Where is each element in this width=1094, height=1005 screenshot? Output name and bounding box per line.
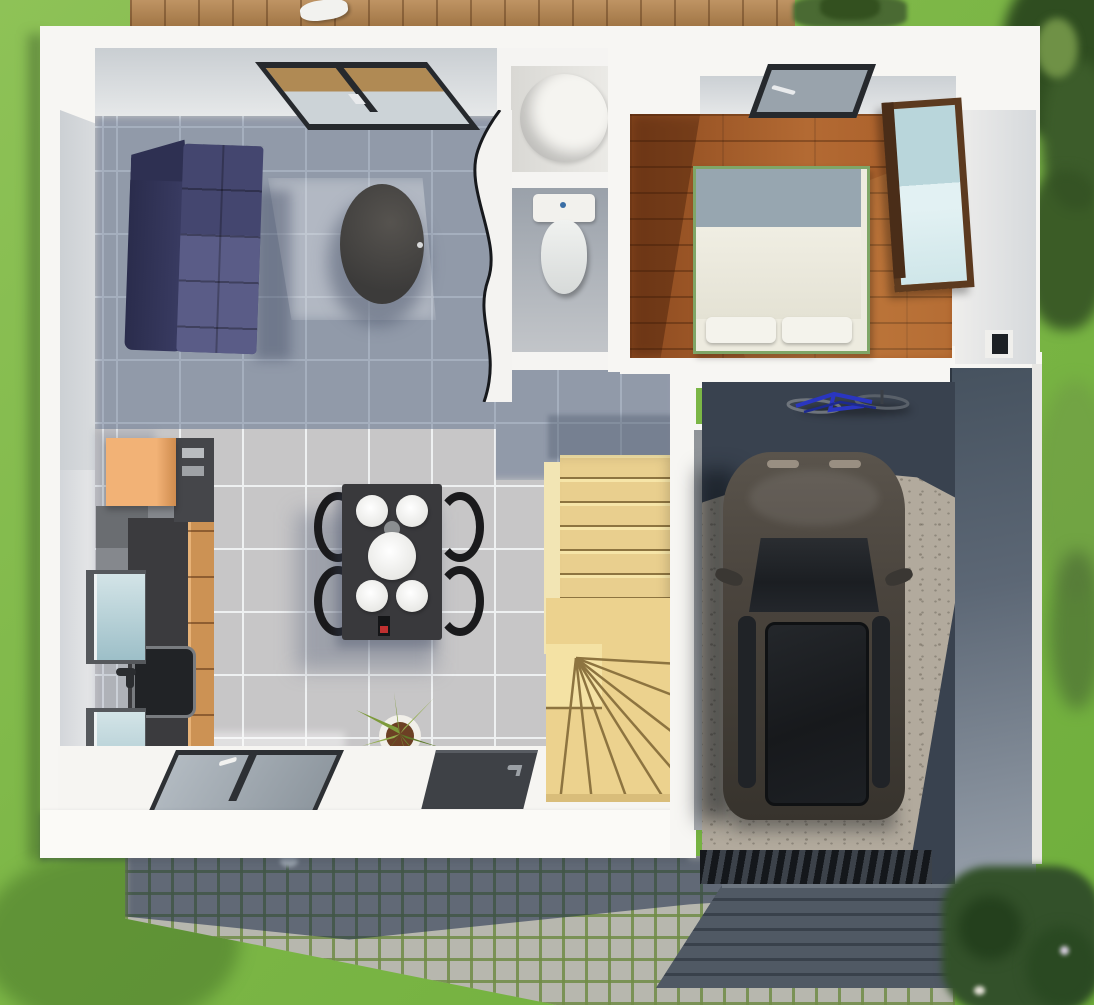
stair-top-shadow [548, 415, 678, 459]
hedge-flower [1060, 946, 1069, 955]
bushes-top-dark [820, 0, 880, 20]
toilet-button [560, 202, 566, 208]
hedge-dark-spot [958, 896, 1022, 960]
wardrobe [881, 97, 974, 292]
car-roof-trim [767, 460, 799, 468]
skylight-mullion [336, 68, 378, 112]
plate [356, 495, 388, 527]
wood-deck [130, 0, 795, 27]
garage-right-wall [950, 368, 1036, 886]
tree-highlight [1036, 18, 1078, 78]
bed-pillow [782, 317, 852, 343]
garage-right-outer-lip [1032, 364, 1042, 864]
bed-duvet [696, 227, 861, 319]
car-roof-trim [829, 460, 861, 468]
plate [396, 495, 428, 527]
car-windshield [749, 538, 879, 612]
bed-head-sheet [696, 169, 861, 227]
bedroom-skylight [748, 64, 876, 118]
dining-chair [436, 566, 484, 636]
car-hood-shine [749, 470, 879, 526]
bedroom-wall-niche [985, 330, 1013, 358]
kitchen-faucet-base [126, 672, 134, 688]
window-handle [219, 757, 237, 767]
corner-sofa [124, 138, 263, 354]
glass-cabinet-front [94, 574, 145, 660]
kitchen-orange-cabinet [106, 438, 176, 506]
garage-door-slats [700, 850, 932, 884]
skylight-reflection [771, 85, 796, 95]
curved-partition-wall [444, 110, 512, 402]
stairs-winder [546, 598, 680, 802]
toilet-cistern [533, 194, 595, 222]
stair-garage-wall [670, 372, 696, 858]
porch-band [40, 810, 688, 858]
oven-steel-panel [182, 448, 204, 458]
floorplan-render [0, 0, 1094, 1005]
bed [693, 166, 870, 354]
glass-wall-cabinet [86, 570, 146, 664]
bed-pillow [706, 317, 776, 343]
oven-steel-panel [182, 466, 204, 476]
wine-bottle-label [380, 626, 388, 633]
coffee-table [340, 184, 424, 304]
toilet-bowl [541, 220, 587, 294]
car [723, 452, 905, 820]
hedge-dark-spot [1026, 926, 1094, 1005]
front-door [421, 750, 538, 809]
car-sunroof [765, 622, 869, 806]
dining-chair [436, 492, 484, 562]
sofa-tuft-lines [176, 144, 263, 355]
coffee-table-handle [417, 242, 423, 248]
shower-tray [520, 74, 608, 162]
bicycles [784, 376, 912, 428]
car-side-window [738, 616, 756, 788]
bottom-window [147, 750, 344, 816]
plate [356, 580, 388, 612]
serving-bowl [368, 532, 416, 580]
car-side-window [872, 616, 890, 788]
niche-window [992, 334, 1008, 354]
plate [396, 580, 428, 612]
hedge-flower [974, 986, 985, 995]
